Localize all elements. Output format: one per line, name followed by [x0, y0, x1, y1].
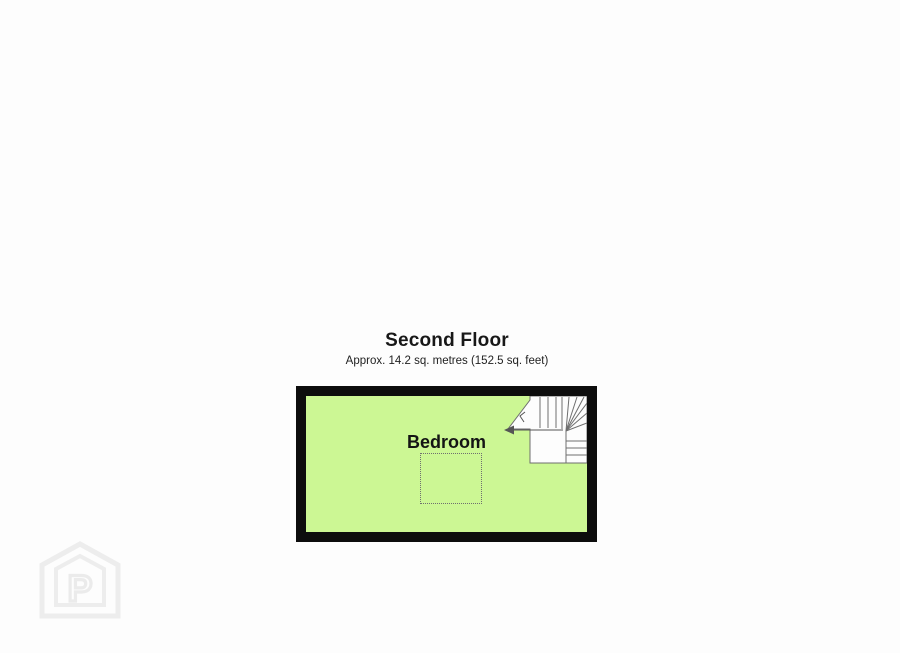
dashed-area-outline — [420, 453, 482, 504]
watermark-letter: P — [68, 568, 93, 609]
room-label: Bedroom — [306, 432, 587, 453]
floorplan-canvas: P Second Floor Approx. 14.2 sq. metres (… — [0, 0, 900, 653]
floor-area-subtitle: Approx. 14.2 sq. metres (152.5 sq. feet) — [271, 355, 623, 367]
title-block: Second Floor Approx. 14.2 sq. metres (15… — [271, 330, 623, 367]
floorplan-drawing: Bedroom — [296, 386, 597, 542]
agency-house-p-logo-icon: P — [38, 541, 122, 620]
floor-title: Second Floor — [271, 330, 623, 352]
bedroom-room: Bedroom — [306, 396, 587, 532]
